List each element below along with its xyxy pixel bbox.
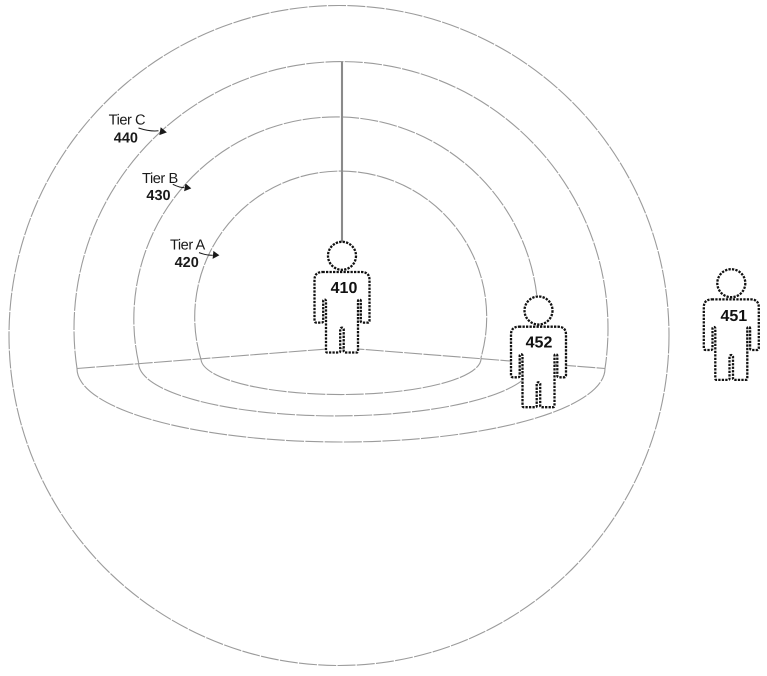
svg-text:451: 451 — [720, 308, 747, 325]
svg-text:Tier C: Tier C — [109, 113, 146, 129]
svg-text:410: 410 — [331, 280, 358, 297]
svg-text:Tier B: Tier B — [142, 171, 178, 187]
svg-text:420: 420 — [175, 255, 199, 271]
svg-text:440: 440 — [114, 131, 138, 147]
svg-text:452: 452 — [526, 334, 553, 351]
svg-text:430: 430 — [146, 188, 170, 204]
svg-text:Tier A: Tier A — [170, 237, 206, 253]
